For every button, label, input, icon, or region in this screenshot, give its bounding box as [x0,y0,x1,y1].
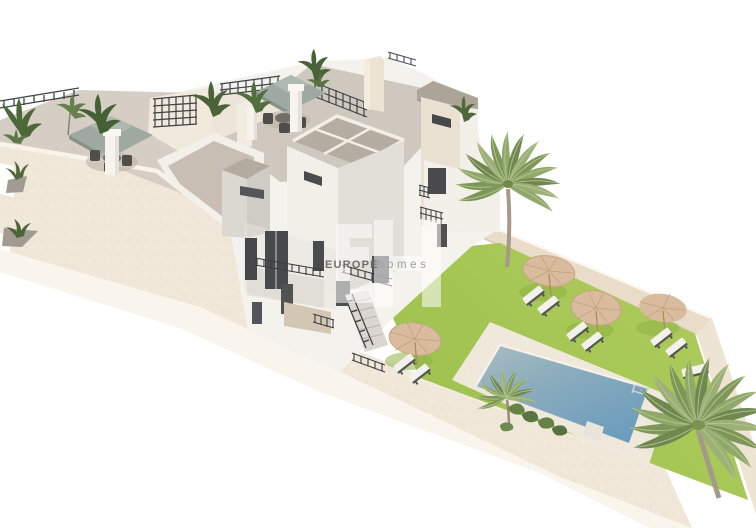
svg-text:homes: homes [377,259,430,271]
svg-text:EUROPE: EUROPE [325,259,379,271]
